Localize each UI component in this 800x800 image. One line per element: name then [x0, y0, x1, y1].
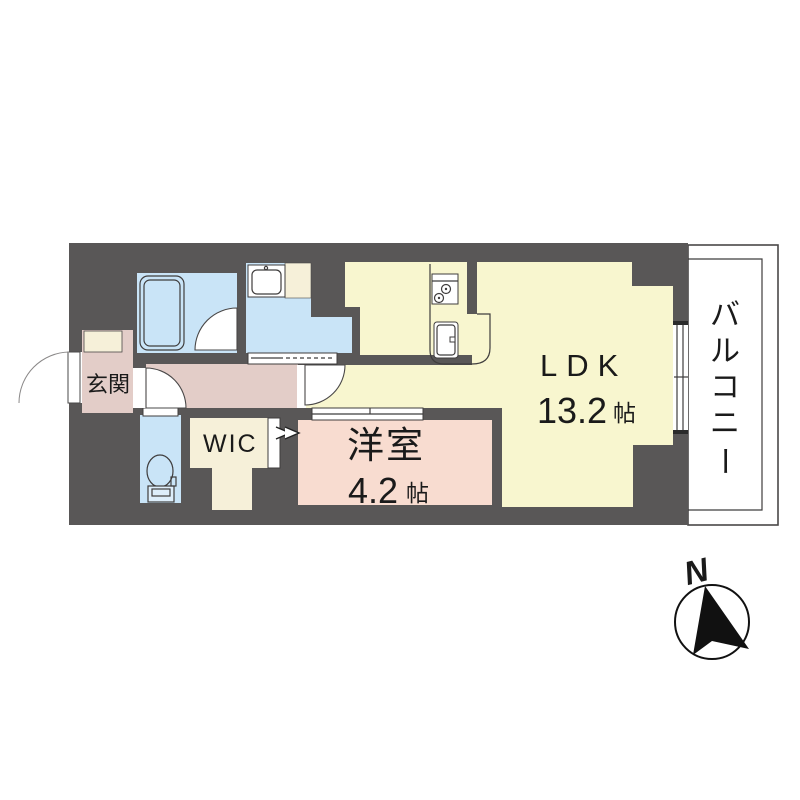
- bedroom-label: 洋室: [347, 425, 425, 466]
- bedroom-size-num: 4.2: [348, 470, 398, 511]
- entrance-label: 玄関: [86, 372, 130, 397]
- kitchen-wall-stub: [467, 262, 477, 314]
- bedroom-window: [312, 408, 423, 420]
- wic-label: WIC: [203, 430, 258, 458]
- shoe-cabinet: [84, 331, 122, 352]
- balcony-char-3: コ: [710, 371, 740, 404]
- washroom-counter: [248, 353, 337, 364]
- ldk-label: LDK: [540, 348, 627, 383]
- kitchen-sink-icon: [434, 322, 458, 358]
- north-compass-icon: N: [675, 550, 749, 659]
- washer-pad: [285, 263, 311, 298]
- balcony-char-2: ル: [710, 335, 740, 368]
- toilet-door: [143, 408, 178, 416]
- front-door: [19, 352, 82, 403]
- balcony-char-4: ニ: [710, 407, 740, 440]
- compass-n-label: N: [680, 550, 713, 592]
- balcony-label: バ ル コ ニ ー: [707, 299, 740, 476]
- ldk-size-num: 13.2: [537, 390, 607, 431]
- balcony-window: [673, 321, 688, 434]
- vanity-sink-icon: [248, 265, 285, 297]
- balcony-char-1: バ: [710, 299, 740, 332]
- balcony-char-5: ー: [707, 446, 740, 476]
- ldk-size-unit: 帖: [613, 400, 636, 426]
- floor-plan-page: LDK 13.2 帖 洋室 4.2 帖 WIC 玄関 バ ル コ ニ ー N: [0, 0, 800, 800]
- bedroom-size-unit: 帖: [406, 480, 429, 506]
- floor-plan-svg: LDK 13.2 帖 洋室 4.2 帖 WIC 玄関 バ ル コ ニ ー N: [0, 0, 800, 800]
- stove-icon: [432, 274, 458, 304]
